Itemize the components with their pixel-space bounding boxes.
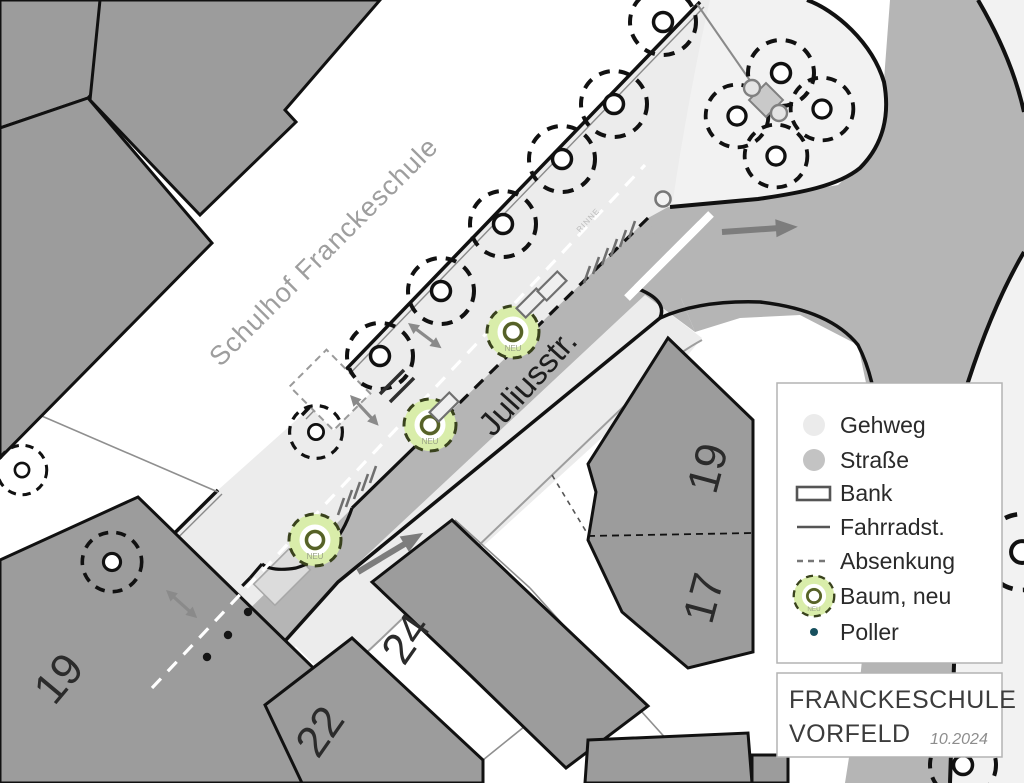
fixture-circle-icon (744, 80, 760, 96)
legend-label: Bank (840, 480, 893, 506)
junction-node-icon (656, 192, 671, 207)
title-block: FRANCKESCHULE VORFELD 10.2024 (777, 673, 1016, 757)
legend-label: Gehweg (840, 412, 926, 438)
bench-icon (797, 487, 830, 500)
legend: Gehweg Straße Bank Fahrradst. Absenkung … (777, 383, 1002, 663)
legend-label: Poller (840, 619, 899, 645)
title-project: FRANCKESCHULE (789, 686, 1016, 714)
legend-label: Straße (840, 447, 909, 473)
sidewalk-dot-icon (803, 414, 825, 436)
legend-item-strasse: Straße (803, 447, 909, 473)
site-plan: NEU (0, 0, 1024, 783)
legend-label: Baum, neu (840, 583, 951, 609)
street-dot-icon (803, 449, 825, 471)
title-area: VORFELD (789, 720, 911, 748)
legend-label: Absenkung (840, 548, 955, 574)
title-date: 10.2024 (930, 731, 988, 748)
plan-canvas: NEU (0, 0, 1024, 783)
fixture-circle-icon (771, 105, 787, 121)
legend-label: Fahrradst. (840, 514, 945, 540)
bollard-icon (810, 628, 818, 636)
building-bottom (752, 755, 788, 783)
building-bottom (585, 733, 752, 783)
